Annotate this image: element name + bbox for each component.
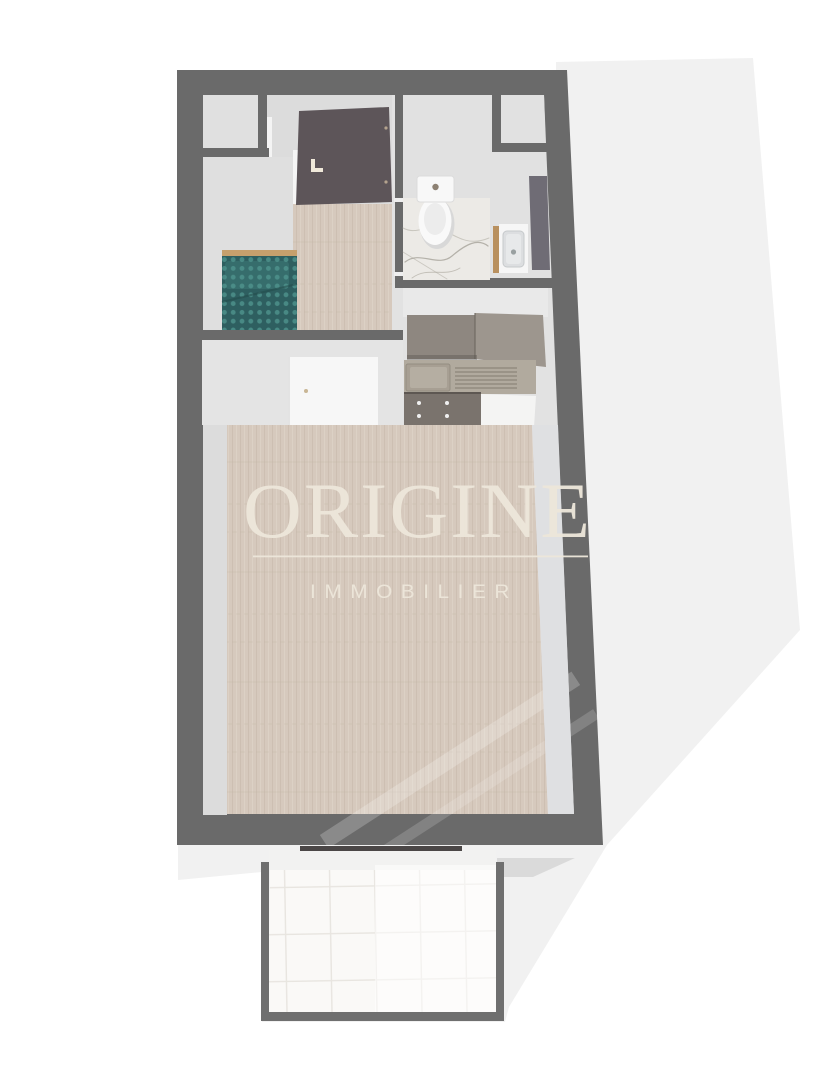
- toilet-flush-button: [432, 184, 438, 190]
- open-white-door: [288, 357, 378, 425]
- upper-cabinet-shadow: [407, 355, 477, 360]
- entry-door-hinge-bottom: [384, 180, 387, 183]
- base-cabinet: [404, 394, 481, 425]
- hall-bathroom-wall: [395, 95, 403, 288]
- shower-dark-panel: [529, 176, 550, 270]
- sink-wood-panel: [493, 226, 499, 273]
- bed: [222, 250, 297, 337]
- hall-wood-grain: [293, 204, 392, 331]
- entry-door-hinge-top: [384, 126, 387, 129]
- entry-door: [296, 107, 392, 205]
- terrace-bottom-wall: [261, 1012, 504, 1021]
- toilet-seat: [424, 203, 446, 235]
- kitchen-back-wall-face: [403, 288, 548, 317]
- terrace-sliding-door-rail: [300, 846, 462, 851]
- brand-name: ORIGINE: [243, 467, 592, 554]
- sink-drain: [511, 249, 516, 254]
- terrace-right-wall: [496, 862, 504, 1020]
- closet-floor: [203, 95, 258, 148]
- living-door-group: [288, 357, 378, 425]
- bed-headboard: [222, 250, 297, 257]
- left-wall-inner-face: [203, 425, 227, 815]
- base-cabinet-end-panel: [481, 394, 536, 427]
- terrace-left-wall: [261, 862, 269, 1014]
- brand-tagline: IMMOBILIER: [310, 581, 518, 603]
- floor-plan-render: ORIGINE IMMOBILIER: [0, 0, 838, 1080]
- open-door-edge: [288, 357, 290, 425]
- kitchen: [404, 313, 546, 427]
- bed-pattern: [222, 256, 297, 337]
- closet-right-wall: [258, 92, 267, 157]
- entry-door-group: [296, 107, 392, 205]
- niche-horizontal-wall: [492, 143, 548, 152]
- counter-sink-inner: [410, 367, 447, 388]
- upper-cabinet-right: [475, 313, 546, 367]
- sink-basin-inner: [506, 234, 521, 264]
- bathroom-door-jamb-bottom: [394, 272, 403, 276]
- terrace-floor-highlight: [375, 865, 496, 1012]
- niche-vertical-wall: [492, 93, 501, 151]
- upper-cabinet-left: [407, 315, 475, 359]
- open-door-handle: [304, 389, 308, 393]
- brand-divider-line: [253, 556, 588, 558]
- bedroom-living-wall: [202, 330, 403, 340]
- bathroom-door-jamb-top: [394, 198, 403, 202]
- scene-canvas: ORIGINE IMMOBILIER: [0, 0, 838, 1080]
